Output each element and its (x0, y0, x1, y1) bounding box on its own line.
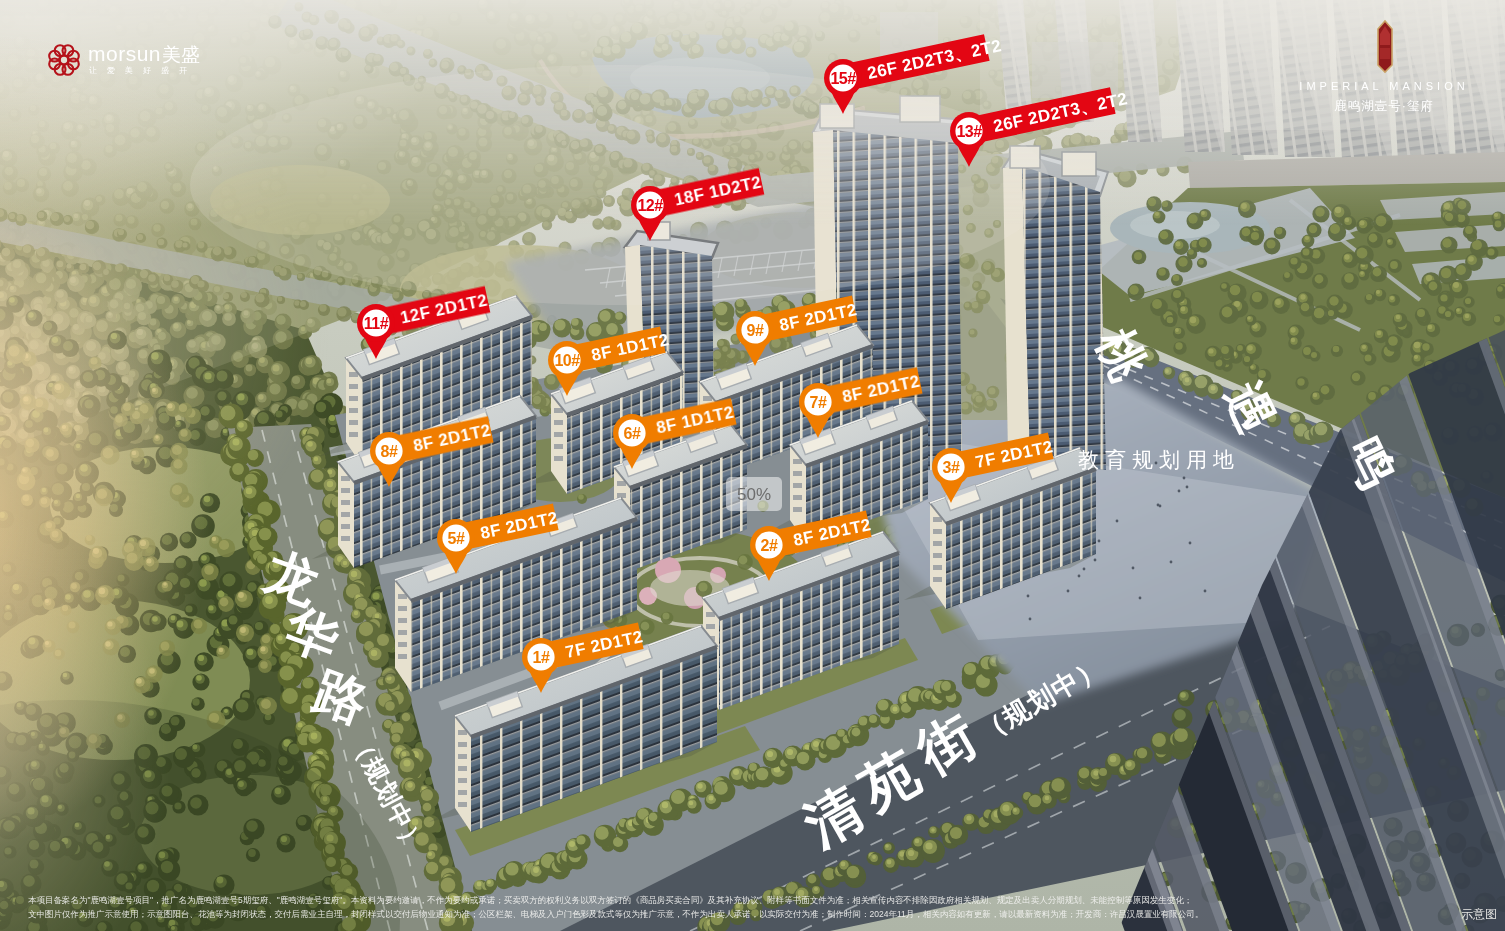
svg-text:50%: 50% (737, 485, 771, 504)
svg-text:2#: 2# (761, 537, 778, 554)
svg-text:IMPERIAL MANSION: IMPERIAL MANSION (1299, 80, 1468, 92)
svg-text:morsun: morsun (88, 42, 161, 65)
svg-text:鹿鸣湖壹号·玺府: 鹿鸣湖壹号·玺府 (1334, 99, 1434, 113)
svg-text:教育规划用地: 教育规划用地 (1078, 448, 1240, 471)
svg-text:7#: 7# (810, 394, 827, 411)
svg-text:15#: 15# (830, 70, 856, 87)
svg-text:1#: 1# (533, 649, 550, 666)
svg-text:13#: 13# (956, 123, 982, 140)
svg-text:本项目备案名为"鹿鸣湖壹号项目"，推广名为鹿鸣湖壹号5期玺府: 本项目备案名为"鹿鸣湖壹号项目"，推广名为鹿鸣湖壹号5期玺府、"鹿鸣湖壹号玺府"… (28, 895, 1192, 905)
svg-text:11#: 11# (364, 315, 389, 332)
svg-text:12#: 12# (637, 197, 663, 214)
svg-text:美盛: 美盛 (162, 44, 200, 65)
svg-text:6#: 6# (624, 425, 641, 442)
svg-text:3#: 3# (943, 459, 960, 476)
svg-text:5#: 5# (448, 530, 465, 547)
svg-text:9#: 9# (747, 322, 764, 339)
svg-text:让爱美好盛开: 让爱美好盛开 (89, 66, 197, 75)
svg-text:10#: 10# (554, 352, 580, 369)
svg-text:8#: 8# (381, 443, 398, 460)
svg-text:示意图: 示意图 (1461, 907, 1497, 921)
svg-text:文中图片仅作为推广示意使用；示意图阳台、花池等为封闭状态，交: 文中图片仅作为推广示意使用；示意图阳台、花池等为封闭状态，交付后需业主自理，封闭… (28, 909, 1203, 919)
